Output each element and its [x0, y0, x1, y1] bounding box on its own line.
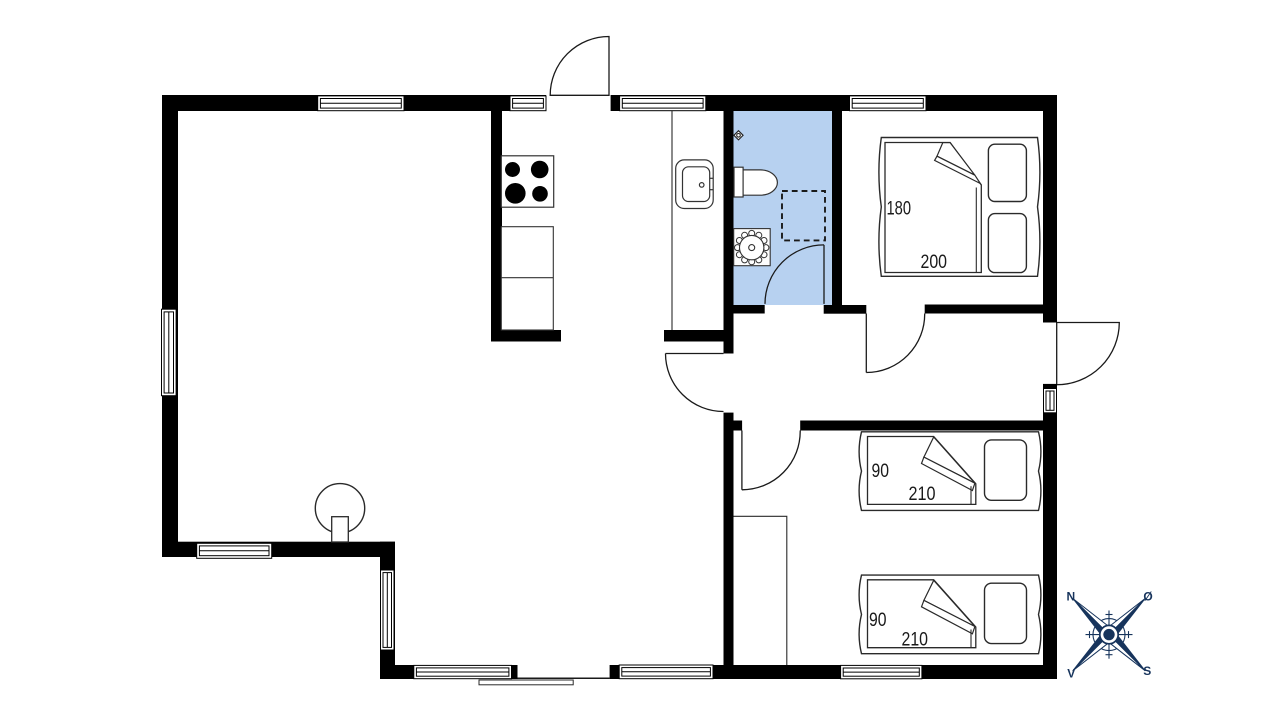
svg-text:200: 200: [921, 252, 948, 273]
svg-text:V: V: [1067, 667, 1075, 681]
svg-text:210: 210: [902, 630, 929, 651]
svg-text:90: 90: [872, 461, 890, 482]
svg-text:N: N: [1066, 589, 1075, 603]
svg-text:210: 210: [909, 484, 936, 505]
svg-text:180: 180: [887, 199, 912, 220]
svg-text:Ø: Ø: [1143, 590, 1152, 604]
svg-text:90: 90: [869, 610, 887, 631]
svg-text:S: S: [1143, 664, 1151, 678]
